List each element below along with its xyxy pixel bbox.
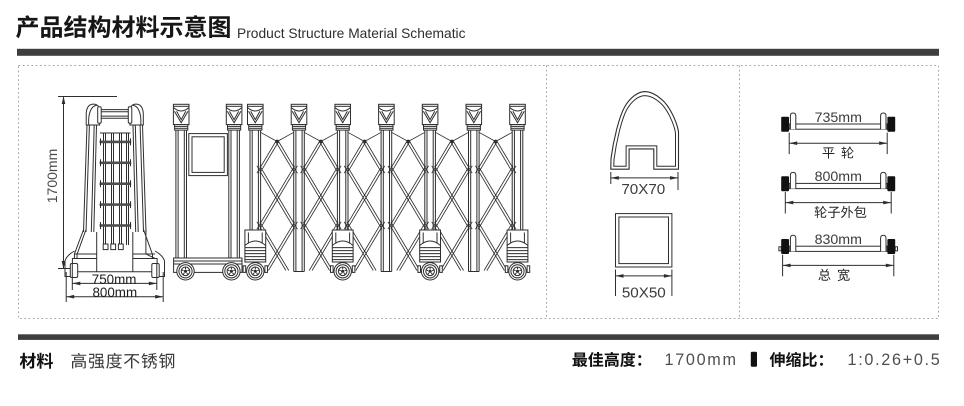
svg-text:50X50: 50X50 (622, 285, 666, 302)
svg-text:800mm: 800mm (92, 285, 137, 300)
svg-text:1700mm: 1700mm (665, 351, 738, 369)
svg-text:70X70: 70X70 (621, 181, 665, 198)
svg-text:1:0.26+0.5: 1:0.26+0.5 (848, 351, 942, 369)
svg-text:735mm: 735mm (815, 110, 862, 126)
svg-text:800mm: 800mm (815, 169, 862, 185)
svg-text:830mm: 830mm (815, 232, 862, 248)
svg-text:1700mm: 1700mm (44, 149, 60, 203)
svg-text:Product Structure Material Sch: Product Structure Material Schematic (237, 26, 466, 41)
